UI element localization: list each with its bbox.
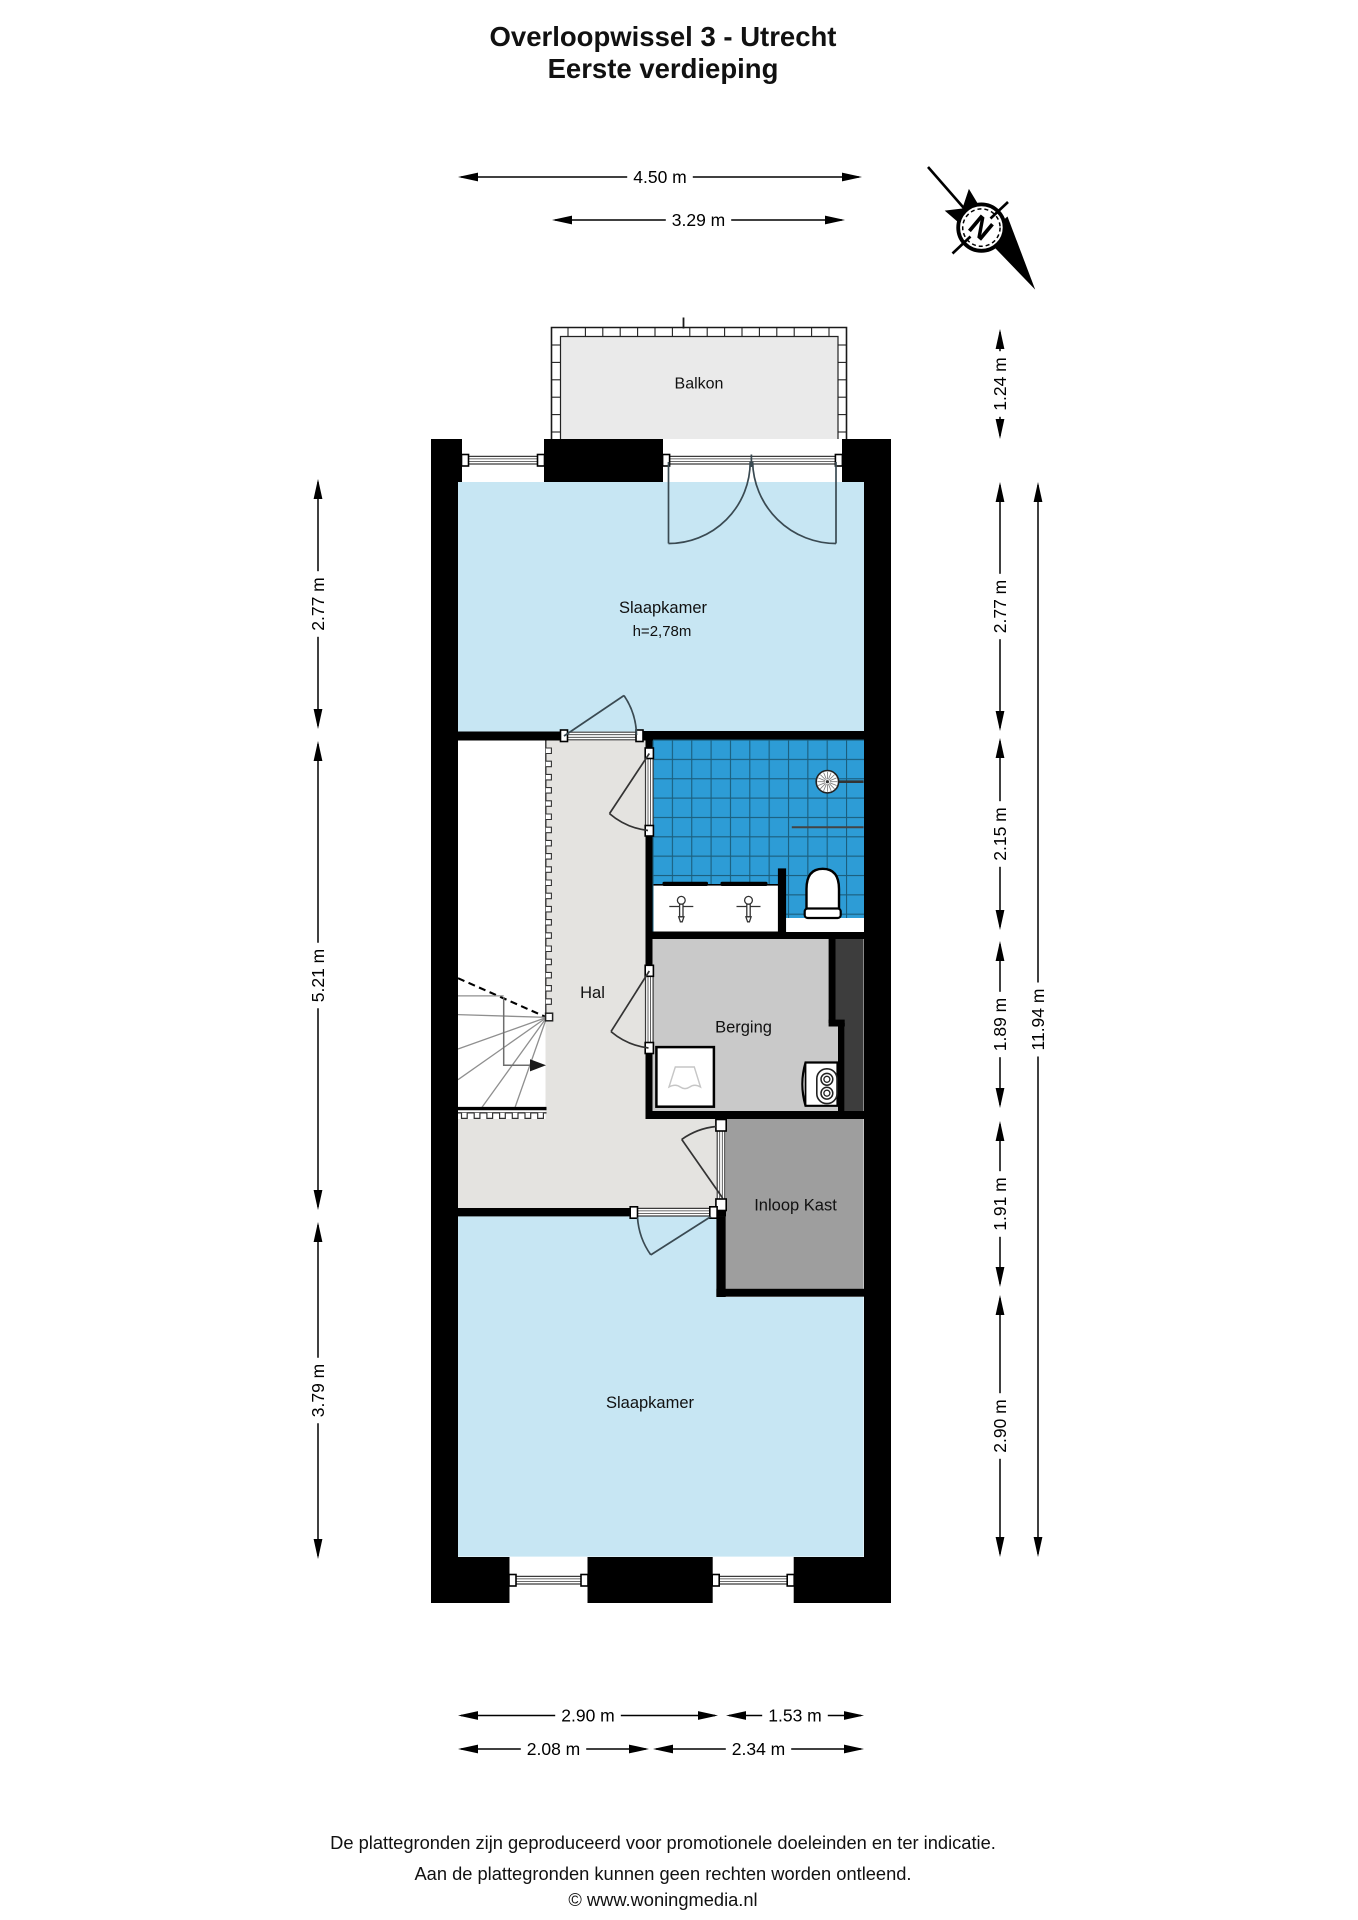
svg-text:Berging: Berging	[715, 1019, 772, 1037]
svg-text:3.79 m: 3.79 m	[308, 1364, 328, 1418]
svg-text:1.24 m: 1.24 m	[990, 357, 1010, 411]
svg-text:De plattegronden zijn geproduc: De plattegronden zijn geproduceerd voor …	[330, 1832, 996, 1853]
svg-text:Hal: Hal	[580, 984, 605, 1002]
svg-text:h=2,78m: h=2,78m	[633, 623, 692, 640]
svg-text:1.89 m: 1.89 m	[990, 998, 1010, 1052]
svg-text:11.94 m: 11.94 m	[1028, 989, 1048, 1051]
svg-text:2.90 m: 2.90 m	[990, 1399, 1010, 1453]
svg-text:Slaapkamer: Slaapkamer	[619, 599, 708, 617]
svg-text:2.90 m: 2.90 m	[561, 1706, 615, 1726]
svg-text:4.50 m: 4.50 m	[633, 167, 687, 187]
svg-text:Aan de plattegronden kunnen ge: Aan de plattegronden kunnen geen rechten…	[414, 1863, 911, 1884]
svg-text:Overloopwissel 3 - Utrecht: Overloopwissel 3 - Utrecht	[490, 21, 837, 52]
svg-text:2.15 m: 2.15 m	[990, 807, 1010, 861]
svg-text:Balkon: Balkon	[675, 376, 724, 393]
svg-text:Inloop Kast: Inloop Kast	[754, 1197, 837, 1215]
svg-text:2.77 m: 2.77 m	[990, 580, 1010, 634]
svg-text:2.08 m: 2.08 m	[527, 1739, 581, 1759]
svg-text:Eerste verdieping: Eerste verdieping	[548, 53, 779, 84]
svg-text:© www.woningmedia.nl: © www.woningmedia.nl	[568, 1889, 757, 1910]
svg-text:2.34 m: 2.34 m	[732, 1739, 786, 1759]
svg-text:1.91 m: 1.91 m	[990, 1177, 1010, 1231]
svg-text:Slaapkamer: Slaapkamer	[606, 1394, 695, 1412]
svg-text:5.21 m: 5.21 m	[308, 949, 328, 1003]
svg-text:3.29 m: 3.29 m	[672, 210, 726, 230]
svg-text:2.77 m: 2.77 m	[308, 577, 328, 631]
svg-text:1.53 m: 1.53 m	[768, 1706, 822, 1726]
